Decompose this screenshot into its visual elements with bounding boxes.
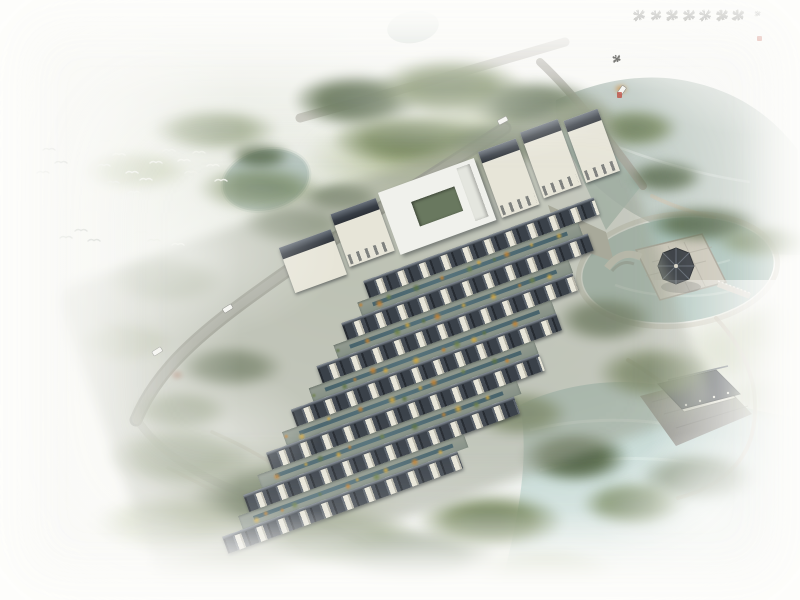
courtyard-tree <box>354 476 360 482</box>
courtyard-tree <box>356 405 365 414</box>
courtyard-tree <box>262 510 270 518</box>
courtyard-tree <box>428 377 440 389</box>
courtyard-tree <box>489 356 499 366</box>
courtyard-tree <box>555 232 564 241</box>
courtyard-tree <box>403 321 412 330</box>
courtyard-tree <box>334 450 343 459</box>
courtyard-tree <box>279 507 285 513</box>
courtyard-tree <box>475 259 483 267</box>
inner-courtyard <box>411 186 463 226</box>
courtyard-tree <box>459 302 467 310</box>
courtyard-tree <box>516 283 522 289</box>
courtyard-tree <box>315 454 325 464</box>
courtyard-tree <box>358 302 364 308</box>
courtyard-tree <box>480 330 488 338</box>
courtyard-tree <box>440 411 448 419</box>
courtyard-tree <box>271 471 281 481</box>
courtyard-tree <box>384 292 393 301</box>
courtyard-tree <box>283 433 289 439</box>
courtyard-tree <box>420 318 428 326</box>
autumn-tree <box>614 84 628 94</box>
courtyard-tree <box>317 492 323 498</box>
courtyard-tree <box>386 394 398 406</box>
courtyard-tree <box>453 404 465 416</box>
courtyard-tree <box>417 384 425 392</box>
courtyard-tree <box>311 393 317 399</box>
courtyard-tree <box>346 444 352 450</box>
courtyard-tree <box>438 274 446 282</box>
courtyard-tree <box>303 461 309 467</box>
courtyard-tree <box>325 416 331 422</box>
courtyard-tree <box>411 282 423 294</box>
courtyard-tree <box>528 241 534 247</box>
forest-canopy <box>80 150 190 192</box>
forest-canopy <box>625 160 705 194</box>
courtyard-tree <box>527 275 537 285</box>
courtyard-tree <box>484 394 492 402</box>
courtyard-tree <box>335 347 341 353</box>
courtyard-tree <box>491 256 497 262</box>
rendering-canvas <box>0 0 800 600</box>
forest-canopy <box>228 143 292 169</box>
courtyard-tree <box>352 376 358 382</box>
courtyard-tree <box>363 337 372 346</box>
courtyard-tree <box>459 367 467 375</box>
courtyard-tree <box>464 264 474 274</box>
courtyard-tree <box>367 365 379 377</box>
forest-canopy <box>580 480 690 528</box>
courtyard-tree <box>378 432 387 441</box>
forest-canopy <box>470 548 620 600</box>
courtyard-tree <box>382 466 391 475</box>
courtyard-tree <box>436 448 444 456</box>
courtyard-tree <box>501 249 511 259</box>
